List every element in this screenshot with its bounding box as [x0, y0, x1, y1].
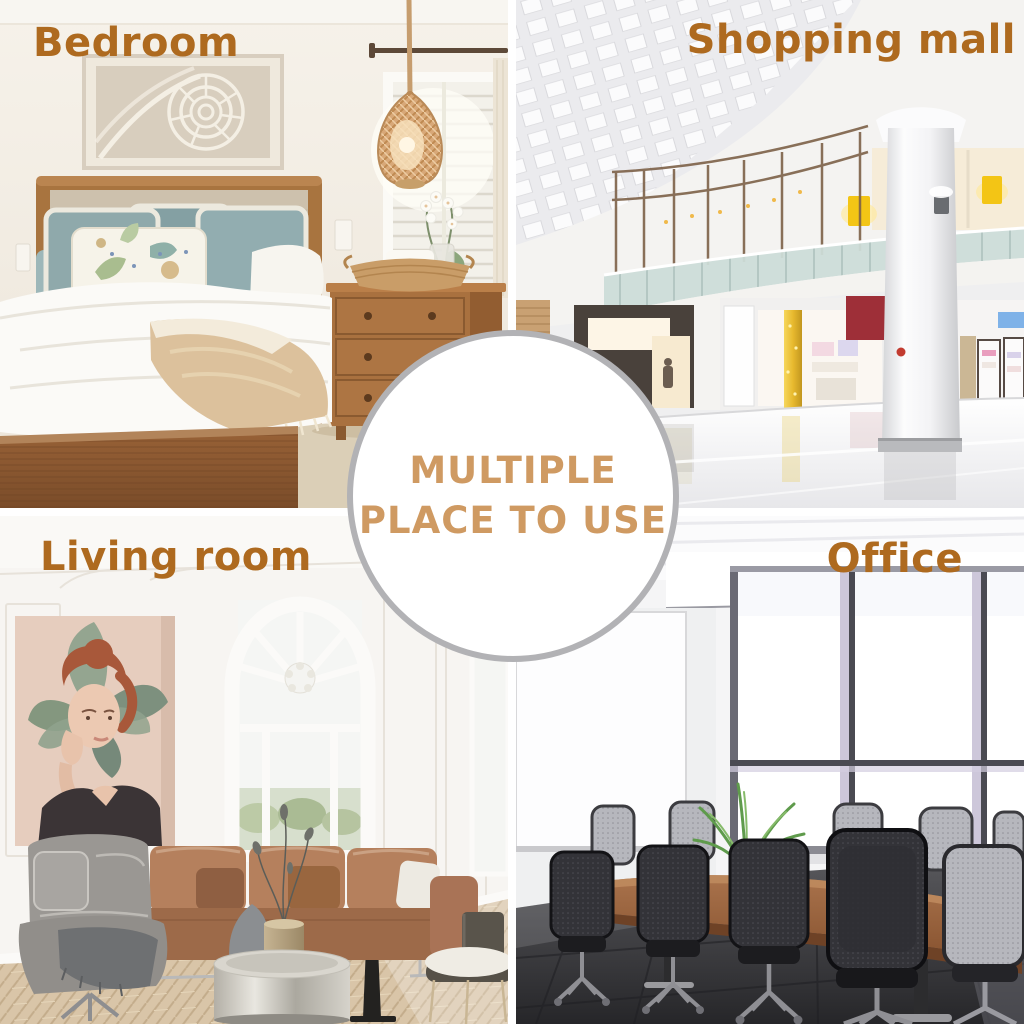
fire-alarm [897, 348, 906, 357]
curtain [493, 58, 508, 298]
right-storefront [952, 300, 1024, 412]
arched-window [226, 600, 374, 862]
office-label: Office [827, 536, 963, 582]
yellow-lantern [982, 176, 1002, 204]
portrait-art [15, 616, 175, 846]
badge-line-2: PLACE TO USE [359, 496, 667, 546]
center-storefront [720, 296, 900, 410]
bed-footboard [0, 426, 298, 508]
bedroom-label: Bedroom [33, 20, 239, 66]
light-switch [16, 244, 30, 271]
living-room-label: Living room [40, 534, 312, 580]
light-switch [335, 220, 352, 250]
white-column [876, 107, 966, 500]
product-collage: Bedroom [0, 0, 1024, 1024]
gold-pillar [784, 310, 802, 408]
badge-line-1: MULTIPLE [409, 446, 616, 496]
shopping-mall-label: Shopping mall [687, 17, 1016, 63]
center-badge: MULTIPLE PLACE TO USE [347, 330, 679, 662]
nautilus-wall-art [84, 56, 282, 168]
column-sconce [934, 196, 949, 214]
